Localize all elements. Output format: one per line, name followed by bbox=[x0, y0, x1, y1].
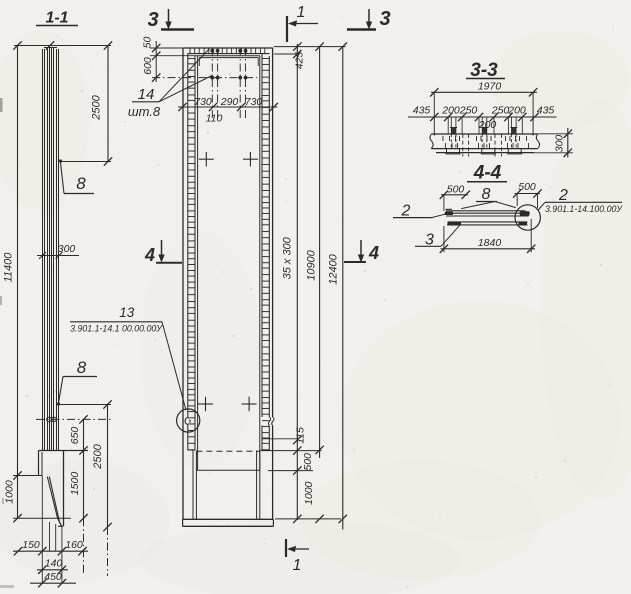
svg-text:200: 200 bbox=[441, 105, 460, 117]
svg-text:1000: 1000 bbox=[303, 481, 315, 505]
svg-text:1: 1 bbox=[293, 557, 302, 574]
svg-text:3: 3 bbox=[147, 9, 158, 31]
svg-text:3: 3 bbox=[379, 8, 390, 30]
svg-text:650: 650 bbox=[69, 427, 81, 445]
svg-text:4: 4 bbox=[368, 243, 379, 263]
svg-text:2: 2 bbox=[558, 187, 568, 204]
svg-text:11400: 11400 bbox=[3, 252, 15, 283]
svg-text:8: 8 bbox=[77, 358, 87, 377]
svg-text:3.901.1-14.100.00У: 3.901.1-14.100.00У bbox=[545, 204, 623, 214]
svg-text:шт.8: шт.8 bbox=[128, 104, 161, 119]
svg-text:110: 110 bbox=[206, 113, 223, 125]
svg-text:2500: 2500 bbox=[92, 443, 104, 469]
svg-text:435: 435 bbox=[413, 105, 431, 117]
svg-text:435: 435 bbox=[537, 105, 555, 117]
svg-text:1840: 1840 bbox=[478, 237, 502, 249]
svg-text:200: 200 bbox=[507, 105, 526, 117]
svg-text:425: 425 bbox=[294, 52, 306, 70]
svg-text:13: 13 bbox=[119, 305, 135, 320]
svg-text:115: 115 bbox=[294, 427, 306, 444]
svg-text:3.901.1-14.1 00.00.00У: 3.901.1-14.1 00.00.00У bbox=[70, 324, 163, 334]
svg-text:2: 2 bbox=[401, 203, 411, 220]
svg-text:150: 150 bbox=[22, 539, 40, 551]
svg-text:600: 600 bbox=[142, 57, 154, 75]
svg-text:2500: 2500 bbox=[91, 94, 103, 120]
svg-text:1000: 1000 bbox=[4, 480, 16, 504]
svg-text:1: 1 bbox=[297, 4, 306, 21]
svg-text:12400: 12400 bbox=[328, 253, 340, 284]
svg-text:730: 730 bbox=[245, 96, 263, 108]
svg-text:140: 140 bbox=[45, 558, 63, 570]
svg-text:160: 160 bbox=[65, 539, 83, 551]
svg-text:730: 730 bbox=[194, 96, 212, 108]
svg-text:4: 4 bbox=[144, 245, 155, 265]
svg-text:50: 50 bbox=[142, 37, 154, 49]
svg-text:1970: 1970 bbox=[478, 81, 502, 93]
svg-text:500: 500 bbox=[302, 453, 314, 471]
svg-text:500: 500 bbox=[518, 181, 536, 193]
svg-text:10900: 10900 bbox=[306, 249, 318, 280]
svg-text:500: 500 bbox=[447, 184, 465, 196]
svg-text:250: 250 bbox=[491, 105, 510, 117]
svg-text:1-1: 1-1 bbox=[45, 10, 68, 27]
svg-text:8: 8 bbox=[76, 174, 86, 193]
svg-text:300: 300 bbox=[554, 135, 566, 153]
svg-text:4-4: 4-4 bbox=[473, 163, 502, 184]
svg-text:300: 300 bbox=[58, 243, 76, 255]
svg-text:35 x 300: 35 x 300 bbox=[281, 236, 293, 279]
svg-text:14: 14 bbox=[138, 86, 155, 103]
svg-text:290: 290 bbox=[220, 96, 239, 108]
svg-text:450: 450 bbox=[44, 571, 62, 583]
svg-text:8: 8 bbox=[482, 186, 491, 203]
svg-text:250: 250 bbox=[459, 105, 478, 117]
svg-text:1500: 1500 bbox=[69, 472, 81, 496]
